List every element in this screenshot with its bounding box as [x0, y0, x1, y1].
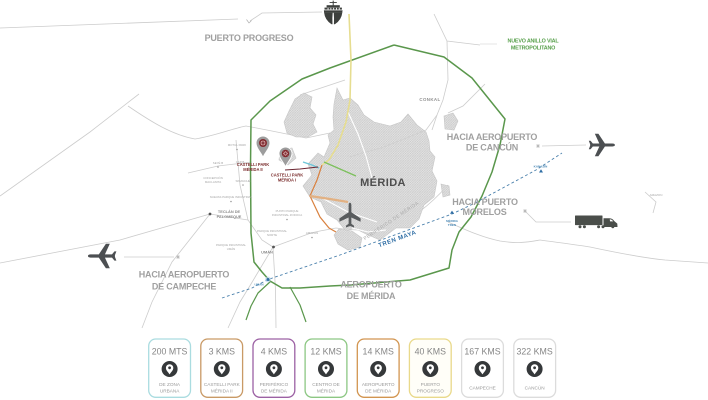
svg-text:AEROPUERTO: AEROPUERTO [362, 382, 395, 387]
svg-text:HACIA PUERTO: HACIA PUERTO [452, 197, 518, 207]
svg-text:MÉRIDA: MÉRIDA [317, 387, 336, 393]
svg-text:PROGRESO: PROGRESO [417, 388, 444, 393]
svg-text:HACIA AEROPUERTO: HACIA AEROPUERTO [447, 132, 538, 142]
svg-text:NORTE: NORTE [267, 233, 277, 237]
svg-text:MORELOS: MORELOS [462, 207, 506, 217]
svg-text:MÉRIDA: MÉRIDA [360, 176, 406, 189]
svg-text:4 KMS: 4 KMS [261, 346, 288, 356]
svg-text:AMAZON: AMAZON [650, 193, 663, 197]
svg-text:DE ZONA: DE ZONA [159, 382, 181, 387]
svg-text:MÉRIDA II: MÉRIDA II [211, 387, 233, 393]
svg-text:INDUSTRIAL ZODOCA: INDUSTRIAL ZODOCA [272, 213, 302, 217]
svg-text:METROPOLITANO: METROPOLITANO [511, 46, 555, 52]
svg-text:HACIA AEROPUERTO: HACIA AEROPUERTO [139, 270, 230, 280]
svg-text:PALOMEQUE: PALOMEQUE [217, 214, 242, 219]
svg-text:167 KMS: 167 KMS [464, 346, 500, 356]
svg-text:CENTRO DE: CENTRO DE [312, 382, 340, 387]
svg-text:322 KMS: 322 KMS [517, 346, 553, 356]
svg-text:MACLANITA: MACLANITA [205, 180, 221, 184]
svg-text:MOTUL PARK: MOTUL PARK [228, 143, 247, 147]
svg-text:URBANA: URBANA [160, 388, 180, 393]
svg-text:40 KMS: 40 KMS [415, 346, 446, 356]
svg-text:AEROPUERTO: AEROPUERTO [340, 280, 402, 290]
svg-text:NUEVAS PARQUE INDUSTRIAL: NUEVAS PARQUE INDUSTRIAL [210, 195, 253, 199]
svg-text:14 KMS: 14 KMS [363, 346, 394, 356]
svg-text:MÉRIDA II: MÉRIDA II [243, 167, 262, 172]
svg-text:DE CANCÚN: DE CANCÚN [466, 142, 518, 153]
svg-text:UMÁN: UMÁN [227, 247, 236, 251]
svg-text:MÉRIDA I: MÉRIDA I [278, 178, 296, 183]
svg-text:CAMPECHE: CAMPECHE [469, 386, 496, 391]
svg-text:PERIFÉRICO: PERIFÉRICO [260, 381, 289, 387]
svg-text:CASTELLI PARK: CASTELLI PARK [204, 382, 241, 387]
svg-text:CONKAL: CONKAL [419, 97, 440, 102]
svg-text:PUERTO: PUERTO [421, 382, 441, 387]
svg-text:DE MÉRIDA: DE MÉRIDA [365, 387, 392, 393]
svg-text:PUERTO PROGRESO: PUERTO PROGRESO [205, 33, 294, 43]
svg-text:SEYÉ B: SEYÉ B [213, 160, 224, 165]
svg-text:TREN: TREN [448, 223, 456, 227]
svg-text:UMÁN: UMÁN [255, 282, 264, 287]
svg-text:AMAZON: AMAZON [306, 231, 318, 235]
svg-text:12 KMS: 12 KMS [310, 346, 341, 356]
svg-text:KANASÍN: KANASÍN [534, 164, 548, 169]
svg-text:3 KMS: 3 KMS [209, 346, 236, 356]
svg-text:SINANCHÉ: SINANCHÉ [236, 178, 251, 183]
svg-text:CANCÚN: CANCÚN [525, 385, 545, 391]
svg-text:200 MTS: 200 MTS [152, 346, 188, 356]
svg-text:DE MÉRIDA: DE MÉRIDA [347, 291, 396, 301]
svg-text:DE MÉRIDA: DE MÉRIDA [261, 387, 288, 393]
svg-text:DE CAMPECHE: DE CAMPECHE [152, 282, 217, 292]
svg-text:UMÁN: UMÁN [261, 250, 273, 255]
svg-text:NUEVO ANILLO VIAL: NUEVO ANILLO VIAL [508, 39, 560, 45]
